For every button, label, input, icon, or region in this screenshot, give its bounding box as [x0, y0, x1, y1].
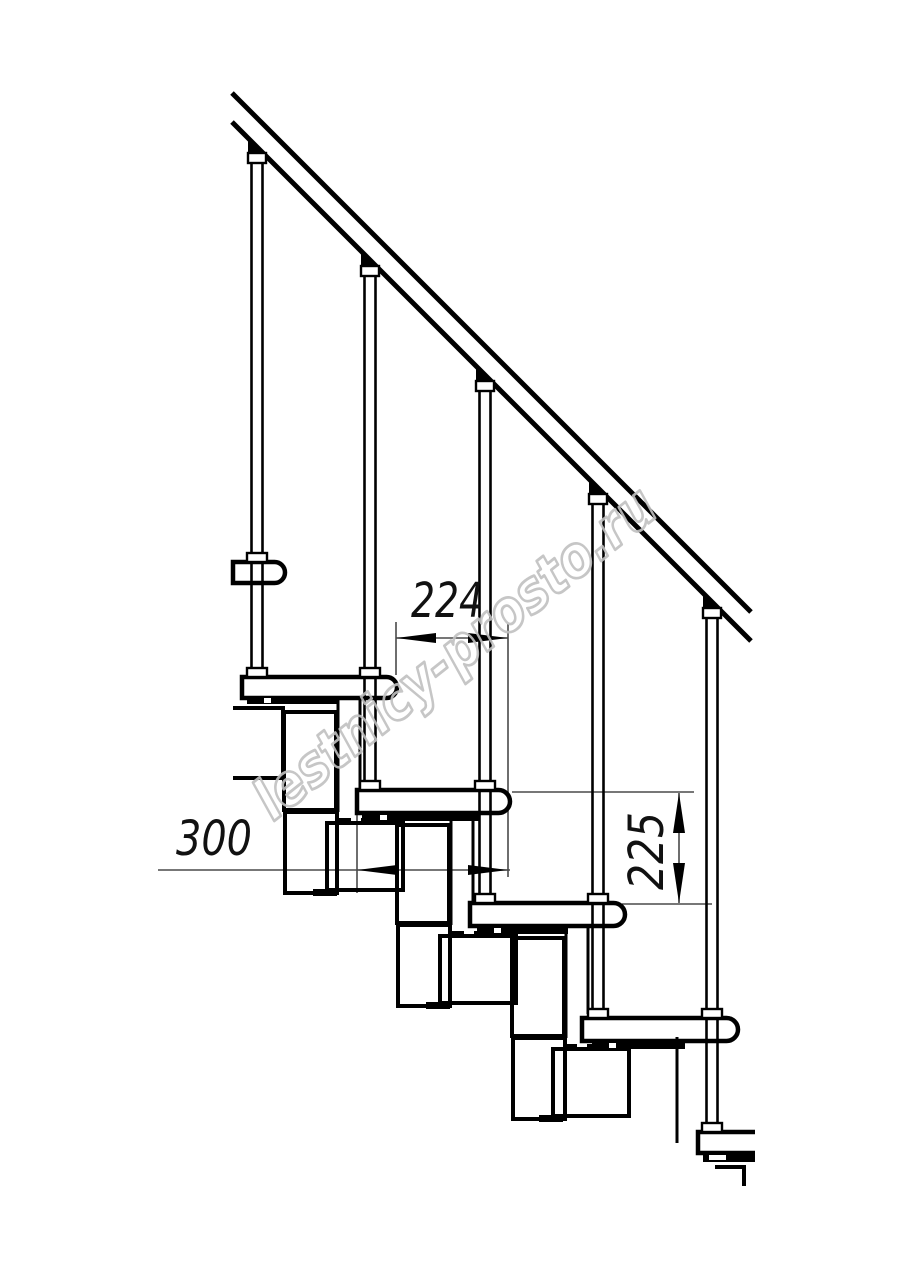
arrowhead-right [468, 865, 508, 875]
staircase-drawing: 224 300 225 lestnicy-prosto.ru [0, 0, 914, 1280]
dimension-225: 225 [619, 793, 685, 903]
baluster-5 [702, 595, 722, 1132]
tread-6 [698, 1132, 755, 1153]
dimension-label-225: 225 [619, 812, 675, 890]
tread-4 [470, 903, 625, 926]
tread-5 [582, 1018, 738, 1041]
tread-1 [233, 562, 285, 583]
drawing-canvas: 224 300 225 lestnicy-prosto.ru [0, 0, 914, 1280]
module-box-partial [715, 1167, 744, 1186]
baluster-1 [247, 140, 267, 677]
module-box [512, 938, 564, 1036]
watermark-text: lestnicy-prosto.ru [241, 473, 669, 833]
tread-3 [357, 790, 510, 813]
dimension-label-300: 300 [176, 811, 252, 867]
arrowhead-left [357, 865, 397, 875]
